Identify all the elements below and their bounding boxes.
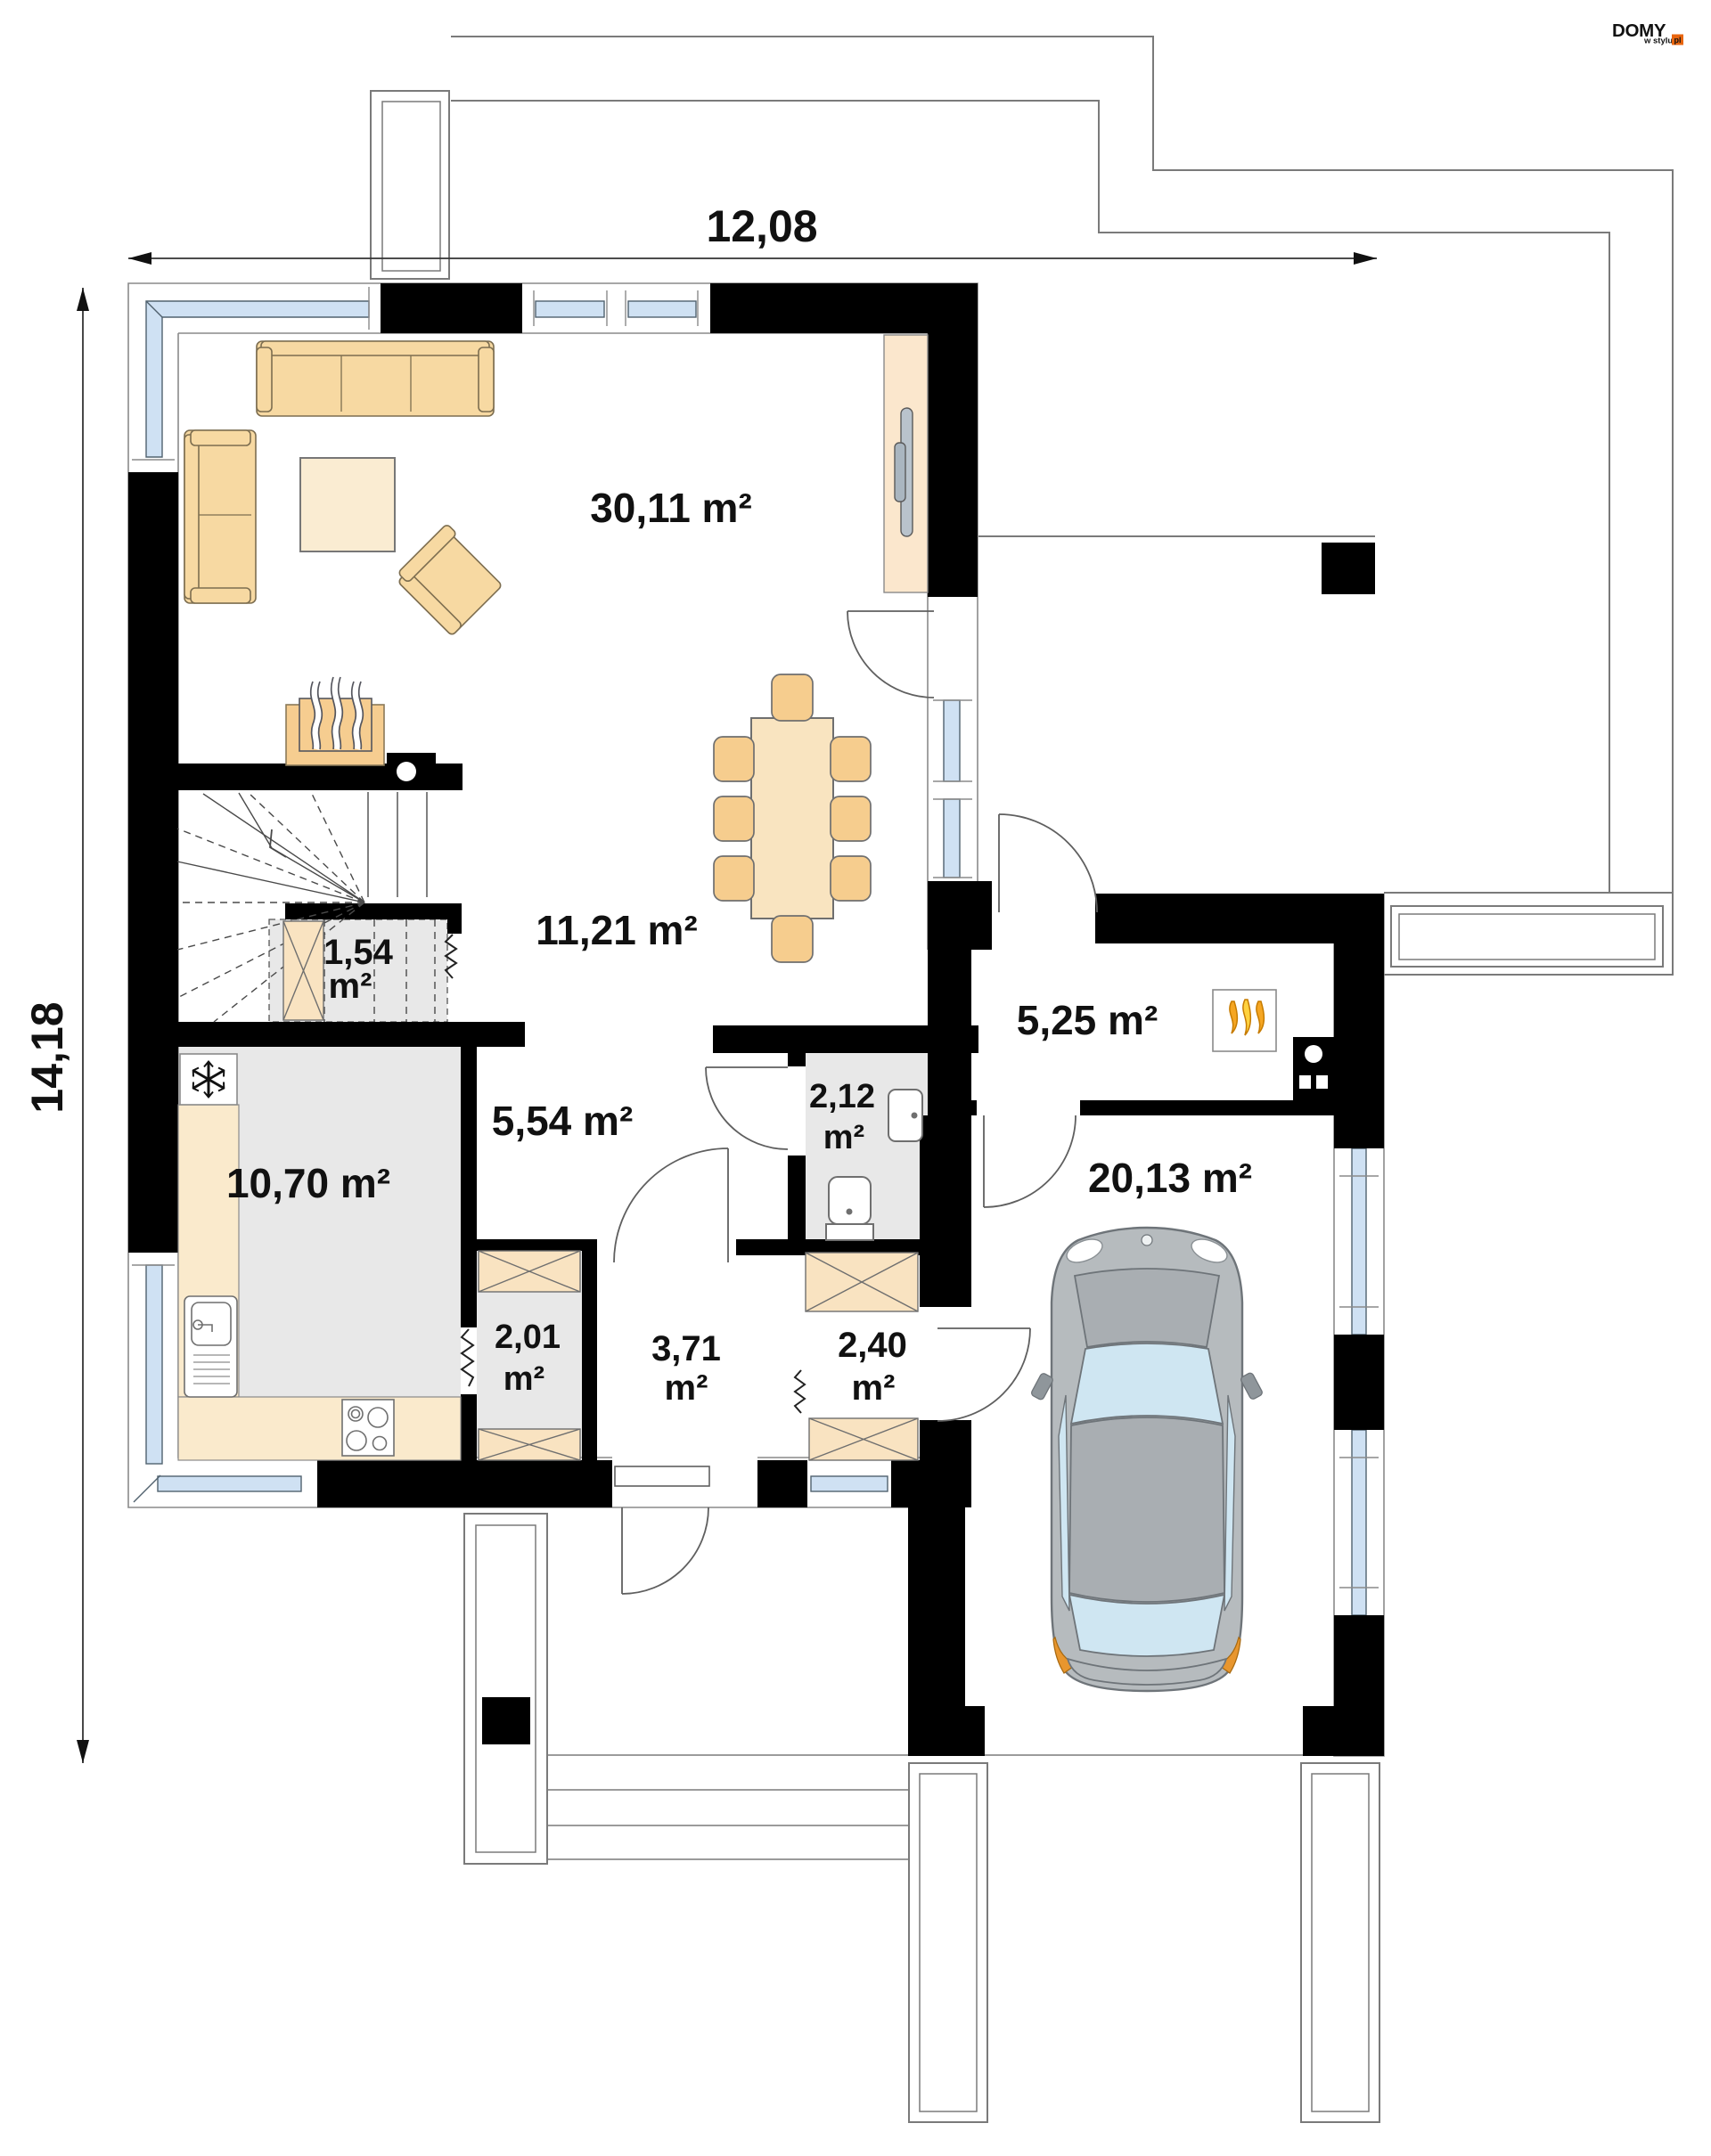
svg-text:3,71: 3,71 (651, 1329, 721, 1368)
svg-text:2,01: 2,01 (495, 1319, 561, 1356)
svg-text:pl: pl (1674, 36, 1682, 45)
svg-text:m²: m² (823, 1119, 864, 1156)
svg-text:5,54 m²: 5,54 m² (492, 1098, 634, 1144)
svg-text:m²: m² (665, 1368, 708, 1408)
svg-text:10,70 m²: 10,70 m² (226, 1160, 390, 1206)
svg-text:12,08: 12,08 (706, 201, 817, 251)
svg-text:m²: m² (852, 1368, 896, 1408)
svg-text:30,11 m²: 30,11 m² (590, 485, 752, 531)
svg-text:14,18: 14,18 (22, 1001, 72, 1113)
svg-text:20,13 m²: 20,13 m² (1088, 1155, 1252, 1201)
svg-text:5,25 m²: 5,25 m² (1017, 997, 1158, 1043)
svg-text:w stylu: w stylu (1643, 37, 1673, 46)
svg-text:2,12: 2,12 (809, 1078, 875, 1115)
svg-text:m²: m² (329, 967, 372, 1006)
svg-text:m²: m² (503, 1360, 544, 1398)
svg-text:2,40: 2,40 (838, 1326, 907, 1365)
svg-text:11,21 m²: 11,21 m² (536, 907, 698, 953)
